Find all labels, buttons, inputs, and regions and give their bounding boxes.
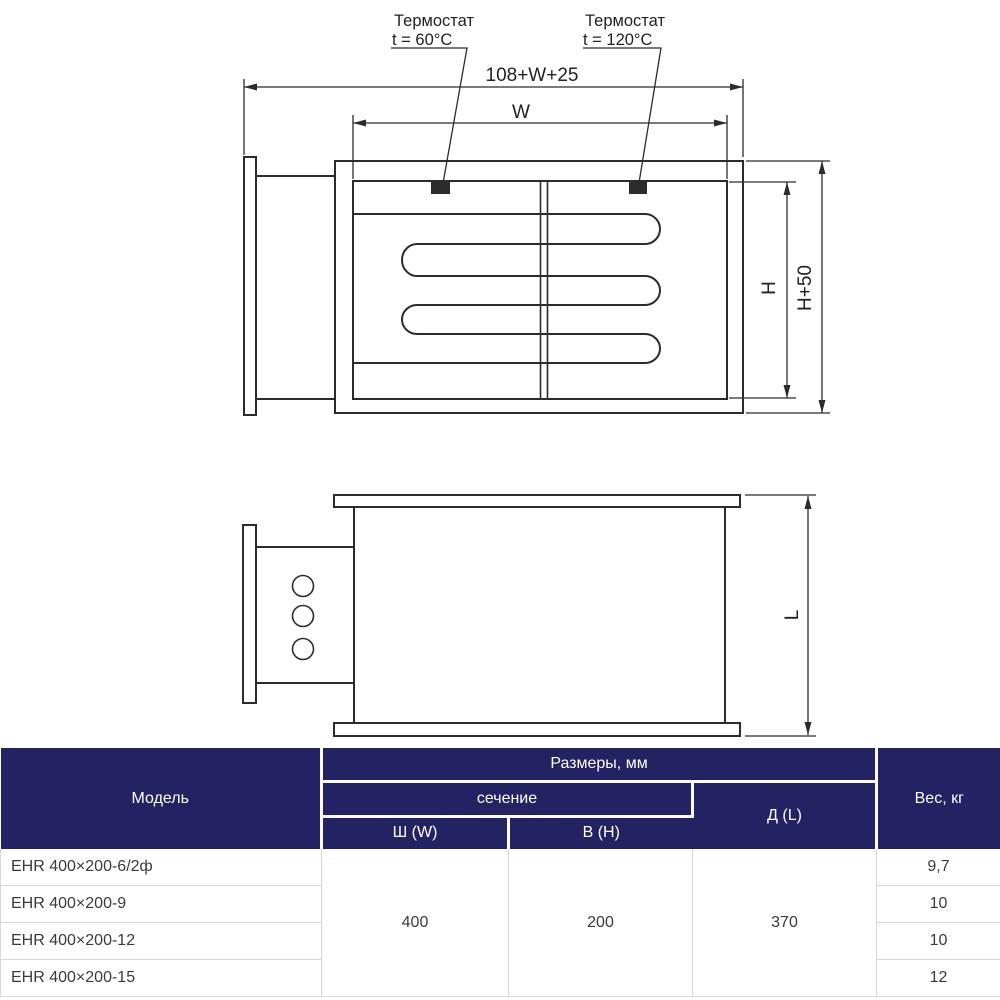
model-cell: EHR 400×200-6/2ф bbox=[1, 849, 322, 886]
spec-table: Модель Размеры, мм Вес, кг сечение Д (L)… bbox=[0, 748, 1000, 997]
dim-total-width-label: 108+W+25 bbox=[486, 65, 579, 86]
shared-length-cell: 370 bbox=[693, 849, 877, 997]
terminal-box bbox=[256, 547, 354, 683]
thermostat-120-title: Термостат bbox=[585, 12, 665, 30]
front-casing bbox=[335, 161, 743, 413]
thermostat-120-setting: t = 120°C bbox=[583, 31, 653, 49]
header-section-group: сечение bbox=[322, 781, 693, 816]
heating-element-coil bbox=[353, 214, 660, 363]
cable-gland-2 bbox=[293, 606, 314, 627]
weight-cell: 12 bbox=[877, 960, 1000, 997]
thermostat-60-title: Термостат bbox=[394, 12, 474, 30]
side-flange-plate bbox=[243, 525, 256, 703]
dim-duct-width-label: W bbox=[512, 102, 530, 123]
spec-table-header: Модель Размеры, мм Вес, кг сечение Д (L)… bbox=[1, 748, 1000, 849]
header-dimensions-group: Размеры, мм bbox=[322, 748, 877, 781]
model-cell: EHR 400×200-12 bbox=[1, 923, 322, 960]
cable-gland-1 bbox=[293, 576, 314, 597]
thermostat-60-leader bbox=[391, 48, 467, 189]
weight-cell: 10 bbox=[877, 923, 1000, 960]
weight-cell: 10 bbox=[877, 886, 1000, 923]
dim-case-height-label: H+50 bbox=[795, 265, 816, 311]
dim-duct-height: H bbox=[729, 182, 796, 398]
thermostat-120-leader bbox=[583, 48, 661, 189]
header-height: В (H) bbox=[509, 816, 693, 849]
weight-cell: 9,7 bbox=[877, 849, 1000, 886]
side-body bbox=[354, 507, 725, 723]
header-model: Модель bbox=[1, 748, 322, 849]
spec-table-body: EHR 400×200-6/2ф 400 200 370 9,7 EHR 400… bbox=[1, 849, 1000, 997]
header-width: Ш (W) bbox=[322, 816, 509, 849]
header-weight: Вес, кг bbox=[877, 748, 1000, 849]
technical-drawing: Термостат t = 60°C Термостат t = 120°C 1… bbox=[0, 0, 1000, 745]
dim-duct-height-label: H bbox=[759, 281, 780, 295]
thermostat-60-setting: t = 60°C bbox=[392, 31, 452, 49]
dim-total-width: 108+W+25 bbox=[244, 65, 743, 157]
side-top-flange bbox=[334, 495, 740, 507]
table-row: EHR 400×200-6/2ф 400 200 370 9,7 bbox=[1, 849, 1000, 886]
model-cell: EHR 400×200-15 bbox=[1, 960, 322, 997]
side-view: L bbox=[243, 495, 816, 736]
dim-length: L bbox=[745, 495, 816, 736]
dim-length-label: L bbox=[782, 610, 803, 621]
thermostat-60-marker bbox=[431, 182, 450, 194]
front-flange-plate bbox=[244, 157, 256, 415]
front-view: Термостат t = 60°C Термостат t = 120°C 1… bbox=[244, 12, 830, 415]
front-duct-stub bbox=[256, 176, 335, 399]
dim-duct-width: W bbox=[353, 102, 727, 179]
shared-width-cell: 400 bbox=[322, 849, 509, 997]
header-length: Д (L) bbox=[693, 781, 877, 849]
shared-height-cell: 200 bbox=[509, 849, 693, 997]
model-cell: EHR 400×200-9 bbox=[1, 886, 322, 923]
cable-gland-3 bbox=[293, 639, 314, 660]
side-bottom-flange bbox=[334, 723, 740, 736]
